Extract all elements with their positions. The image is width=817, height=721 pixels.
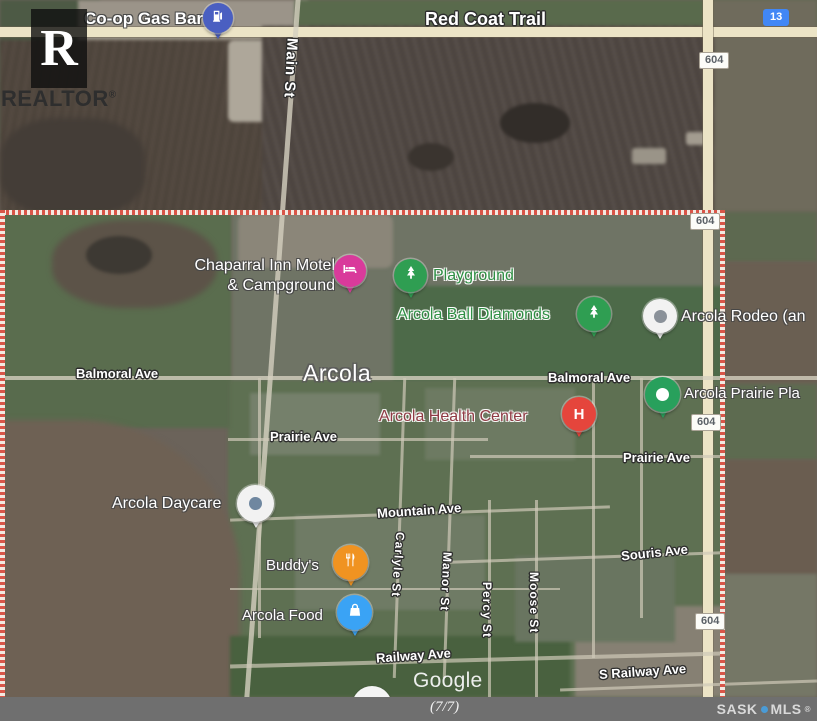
route-shield-604: 604	[695, 613, 725, 630]
road-label-percy-st: Percy St	[480, 582, 494, 638]
poi-pin-playground[interactable]	[394, 259, 427, 292]
road-highway-604	[703, 0, 713, 697]
tree-icon	[403, 265, 419, 286]
road-prairie-ave-w	[228, 438, 488, 441]
route-shield-604: 604	[699, 52, 729, 69]
terrain-patch	[0, 420, 240, 697]
poi-label-daycare[interactable]: Arcola Daycare	[112, 495, 221, 513]
city-label-arcola: Arcola	[303, 360, 371, 387]
sask-mls-brand: SASK MLS®	[717, 701, 811, 717]
road-label-prairie-ave-w: Prairie Ave	[270, 429, 337, 444]
terrain-patch	[408, 143, 454, 171]
brand-mls: MLS	[771, 701, 802, 717]
brand-sask: SASK	[717, 701, 758, 717]
restaurant-icon	[343, 552, 359, 573]
poi-pin-health-center[interactable]: H	[562, 397, 596, 431]
poi-label-line: & Campground	[227, 277, 335, 294]
terrain-patch	[724, 212, 817, 262]
registered-mark: ®	[805, 705, 811, 714]
terrain-patch	[632, 148, 666, 164]
hospital-h-icon: H	[574, 406, 585, 423]
poi-label-ball-diamonds[interactable]: Arcola Ball Diamonds	[397, 306, 550, 324]
shopping-bag-icon	[347, 602, 363, 623]
poi-pin-daycare[interactable]	[237, 485, 274, 522]
satellite-map[interactable]: Red Coat Trail Main St Balmoral Ave Balm…	[0, 0, 817, 697]
poi-label-arcola-food[interactable]: Arcola Food	[242, 607, 323, 624]
route-shield-13: 13	[763, 9, 789, 26]
road-label-balmoral-ave-e: Balmoral Ave	[548, 370, 630, 385]
poi-label-buddys[interactable]: Buddy's	[266, 557, 319, 574]
route-shield-604: 604	[690, 213, 720, 230]
realtor-logo: R	[31, 9, 87, 88]
poi-pin-prairie-place[interactable]	[645, 377, 680, 412]
google-logo[interactable]: Google	[413, 669, 483, 693]
realtor-wordmark: REALTOR®	[1, 86, 117, 112]
poi-label-prairie-place[interactable]: Arcola Prairie Pla	[684, 385, 800, 402]
tree-icon	[586, 304, 602, 325]
poi-pin-gas[interactable]	[203, 3, 233, 33]
brand-dot-icon	[761, 706, 768, 713]
terrain-patch	[0, 118, 145, 216]
road-label-main-st: Main St	[280, 38, 300, 99]
road-label-moose-st: Moose St	[527, 572, 541, 633]
gas-pump-icon	[211, 9, 225, 28]
poi-label-rodeo[interactable]: Arcola Rodeo (an	[681, 308, 806, 326]
road-label-balmoral-ave-w: Balmoral Ave	[76, 366, 158, 381]
terrain-patch	[500, 103, 570, 143]
poi-pin-motel[interactable]	[334, 255, 366, 287]
route-shield-604: 604	[691, 414, 721, 431]
terrain-patch	[86, 236, 152, 274]
listing-map-page: Red Coat Trail Main St Balmoral Ave Balm…	[0, 0, 817, 721]
road-label-prairie-ave-e: Prairie Ave	[623, 450, 690, 465]
terrain-patch	[724, 460, 817, 574]
realtor-logo-letter: R	[40, 23, 78, 75]
terrain-patch	[262, 26, 714, 214]
road-label-red-coat-trail: Red Coat Trail	[425, 9, 546, 30]
poi-pin-buddys[interactable]	[333, 545, 368, 580]
poi-label-playground[interactable]: Playground	[433, 267, 514, 285]
poi-label-coop-gas-bar[interactable]: Co-op Gas Bar	[84, 9, 203, 29]
registered-mark: ®	[109, 90, 117, 101]
property-boundary-left	[0, 210, 5, 697]
poi-pin-ball-diamonds[interactable]	[577, 297, 611, 331]
bed-icon	[342, 261, 358, 282]
poi-pin-arcola-food[interactable]	[337, 595, 372, 630]
terrain-patch	[724, 574, 817, 697]
footer-bar: (7/7) SASK MLS®	[0, 697, 817, 721]
photo-page-indicator: (7/7)	[430, 699, 459, 716]
dot-icon	[654, 310, 667, 323]
property-boundary-top	[0, 210, 722, 215]
dot-icon	[249, 497, 262, 510]
poi-label-chaparral-inn[interactable]: Chaparral Inn Motel & Campground	[168, 256, 335, 296]
poi-label-line: Chaparral Inn Motel	[194, 257, 335, 274]
poi-label-health-center[interactable]: Arcola Health Center	[379, 408, 528, 426]
road-town-col-e2	[640, 378, 643, 618]
poi-pin-rodeo[interactable]	[643, 299, 677, 333]
dot-icon	[656, 388, 669, 401]
